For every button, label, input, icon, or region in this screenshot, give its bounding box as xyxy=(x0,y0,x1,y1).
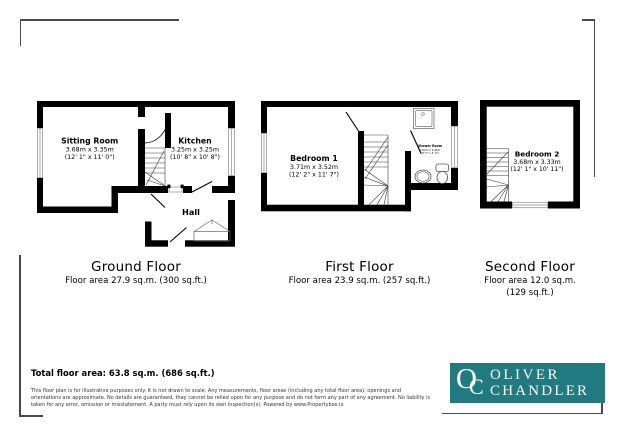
frame-bottom-left-horizontal xyxy=(19,415,43,417)
frame-top-left-horizontal xyxy=(20,19,179,21)
logo-name-line1: OLIVER xyxy=(490,367,589,383)
ground-window-left xyxy=(37,128,43,178)
frame-bottom-right-horizontal xyxy=(442,413,602,415)
bedroom2-metric: 3.68m x 3.33m xyxy=(513,159,560,166)
frame-top-left-vertical xyxy=(20,19,22,46)
disclaimer-line-3: taken for any error, omission or misstat… xyxy=(31,402,344,408)
second-floor-title: Second Floor xyxy=(455,259,605,275)
second-stairs xyxy=(487,149,509,202)
logo-wordmark: OLIVER CHANDLER xyxy=(490,367,589,399)
kitchen-label: Kitchen xyxy=(178,137,211,146)
second-window-bottom xyxy=(512,202,548,209)
ground-window-right xyxy=(228,128,235,176)
sitting-room-label: Sitting Room xyxy=(61,137,118,146)
frame-top-right-vertical xyxy=(594,19,596,177)
floor-plan-ground: Sitting Room 3.68m x 3.35m (12' 1" x 11'… xyxy=(37,101,235,247)
ground-floor-area: Floor area 27.9 sq.m. (300 sq.ft.) xyxy=(37,276,235,286)
bedroom2-label: Bedroom 2 xyxy=(515,150,560,159)
ground-floor-title: Ground Floor xyxy=(37,259,235,275)
first-window-right xyxy=(451,126,458,168)
sitting-room-imperial: (12' 1" x 11' 0") xyxy=(65,154,115,161)
bedroom1-metric: 3.71m x 3.52m xyxy=(290,164,338,171)
kitchen-imperial: (10' 8" x 10' 8") xyxy=(170,154,220,161)
floor-plan-first: Bedroom 1 3.71m x 3.52m (12' 2" x 11' 7"… xyxy=(261,101,458,212)
first-stairs xyxy=(364,135,388,205)
hall-cupboard xyxy=(194,220,230,241)
second-floor-area-metric: Floor area 12.0 sq.m. xyxy=(455,276,605,286)
toilet xyxy=(436,164,449,184)
ground-walls xyxy=(37,101,235,247)
ground-kitchen-hatch xyxy=(167,185,183,193)
logo-name-line2: CHANDLER xyxy=(490,383,589,399)
floor-plan-second: Bedroom 2 3.68m x 3.33m (12' 1" x 10' 11… xyxy=(480,100,580,209)
first-floor-area: Floor area 23.9 sq.m. (257 sq.ft.) xyxy=(261,276,458,286)
first-window-left xyxy=(261,133,267,173)
shower-room-imperial: (8' 7" x 4' 9") xyxy=(421,151,439,155)
kitchen-metric: 3.25m x 3.25m xyxy=(171,147,219,154)
second-floor-area-imperial: (129 sq.ft.) xyxy=(455,288,605,298)
agency-logo: O C OLIVER CHANDLER xyxy=(450,363,605,403)
total-floor-area: Total floor area: 63.8 sq.m. (686 sq.ft.… xyxy=(31,368,215,378)
disclaimer-line-2: orientations are approximate. No details… xyxy=(31,395,430,401)
sitting-room-metric: 3.68m x 3.35m xyxy=(66,147,114,154)
bedroom2-imperial: (12' 1" x 10' 11") xyxy=(510,166,563,173)
disclaimer-line-1: This floor plan is for illustrative purp… xyxy=(31,388,401,394)
frame-bottom-left-vertical xyxy=(19,255,21,417)
logo-monogram-c: C xyxy=(469,376,484,398)
hall-label: Hall xyxy=(182,207,200,217)
first-floor-title: First Floor xyxy=(261,259,458,275)
basin xyxy=(415,170,431,183)
floorplan-page: Sitting Room 3.68m x 3.35m (12' 1" x 11'… xyxy=(0,0,620,434)
bedroom1-label: Bedroom 1 xyxy=(290,154,338,163)
bedroom1-imperial: (12' 2" x 11' 7") xyxy=(289,171,339,178)
shower-tray xyxy=(414,108,435,128)
ground-stairs xyxy=(145,148,165,186)
